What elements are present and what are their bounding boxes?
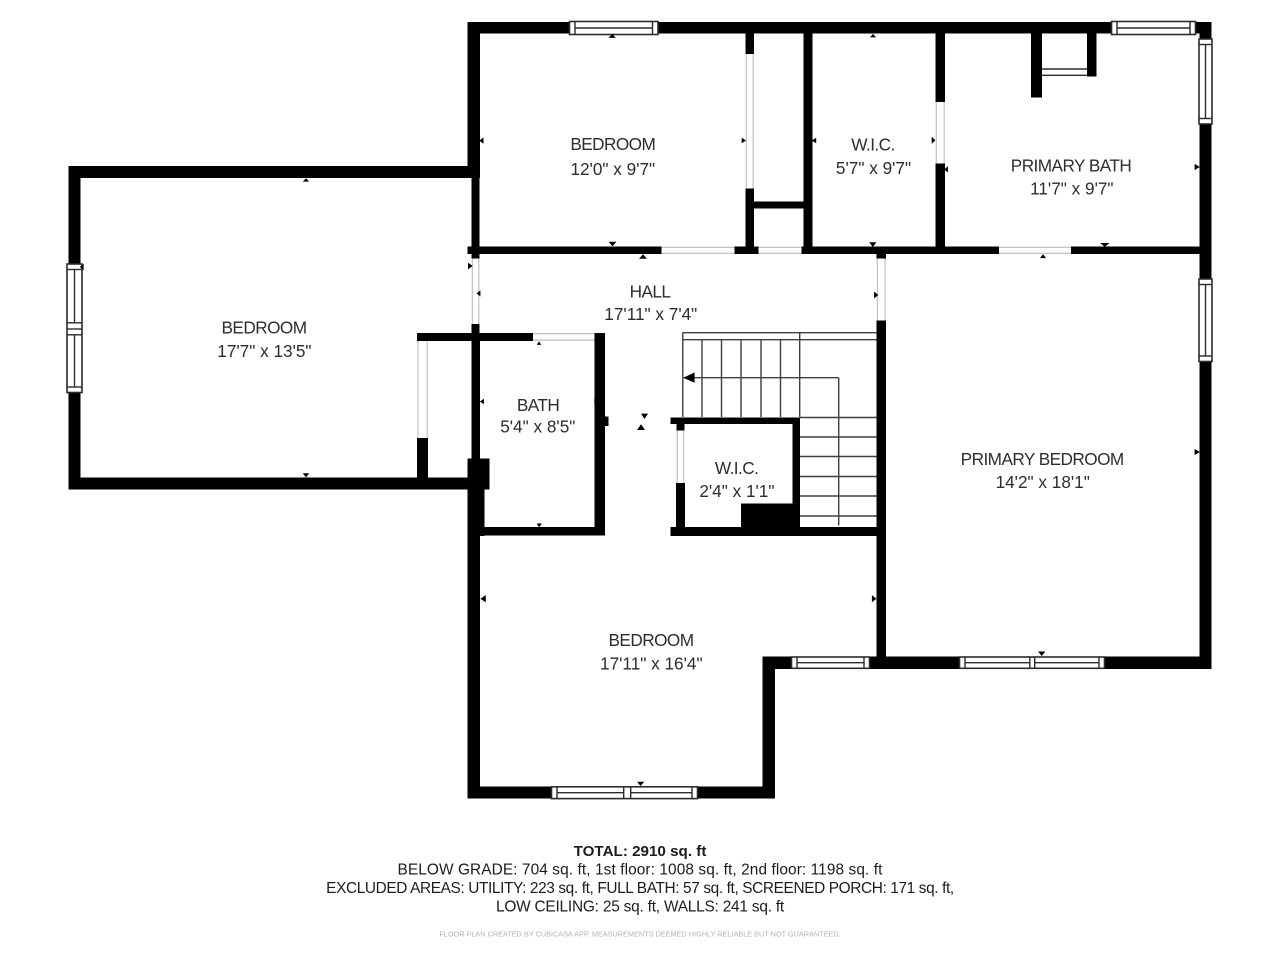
svg-text:5'4" x 8'5": 5'4" x 8'5": [500, 417, 575, 437]
svg-text:11'7" x 9'7": 11'7" x 9'7": [1030, 179, 1113, 199]
svg-text:FLOOR PLAN CREATED BY CUBICASA: FLOOR PLAN CREATED BY CUBICASA APP. MEAS…: [439, 929, 840, 938]
svg-text:W.I.C.: W.I.C.: [715, 458, 759, 478]
svg-text:17'11" x 7'4": 17'11" x 7'4": [604, 304, 697, 324]
svg-text:EXCLUDED AREAS: UTILITY: 223 s: EXCLUDED AREAS: UTILITY: 223 sq. ft, FUL…: [326, 880, 954, 897]
svg-text:5'7" x 9'7": 5'7" x 9'7": [836, 158, 911, 178]
svg-text:BEDROOM: BEDROOM: [570, 134, 655, 154]
svg-text:17'7" x 13'5": 17'7" x 13'5": [217, 341, 311, 361]
svg-text:BATH: BATH: [517, 395, 560, 415]
svg-text:14'2" x 18'1": 14'2" x 18'1": [996, 472, 1090, 492]
svg-text:TOTAL: 2910 sq. ft: TOTAL: 2910 sq. ft: [574, 843, 707, 860]
svg-text:BEDROOM: BEDROOM: [222, 318, 307, 338]
svg-text:12'0" x 9'7": 12'0" x 9'7": [570, 159, 655, 179]
svg-text:HALL: HALL: [630, 282, 671, 302]
svg-text:BELOW GRADE: 704 sq. ft, 1st f: BELOW GRADE: 704 sq. ft, 1st floor: 1008…: [397, 862, 883, 879]
svg-text:17'11" x 16'4": 17'11" x 16'4": [600, 654, 703, 674]
svg-text:PRIMARY BATH: PRIMARY BATH: [1011, 156, 1132, 176]
svg-text:LOW CEILING: 25 sq. ft, WALLS:: LOW CEILING: 25 sq. ft, WALLS: 241 sq. f…: [496, 899, 785, 916]
svg-text:PRIMARY BEDROOM: PRIMARY BEDROOM: [961, 449, 1124, 469]
svg-text:W.I.C.: W.I.C.: [851, 134, 895, 154]
svg-text:2'4" x 1'1": 2'4" x 1'1": [699, 481, 774, 501]
svg-text:BEDROOM: BEDROOM: [609, 630, 694, 650]
